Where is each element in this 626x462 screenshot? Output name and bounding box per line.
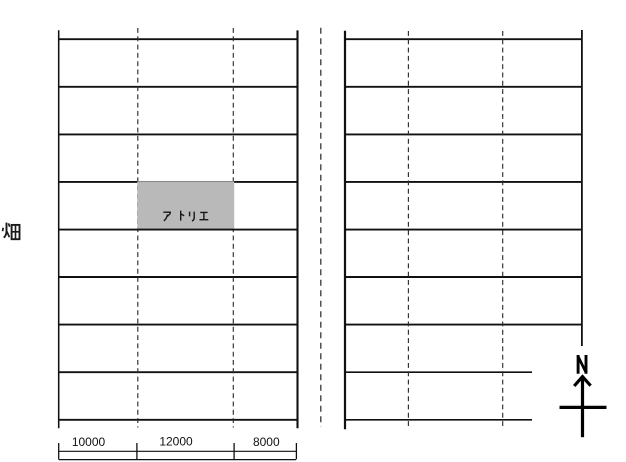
svg-text:12000: 12000 [159,434,193,448]
svg-text:8000: 8000 [253,435,280,449]
svg-text:10000: 10000 [72,435,106,449]
